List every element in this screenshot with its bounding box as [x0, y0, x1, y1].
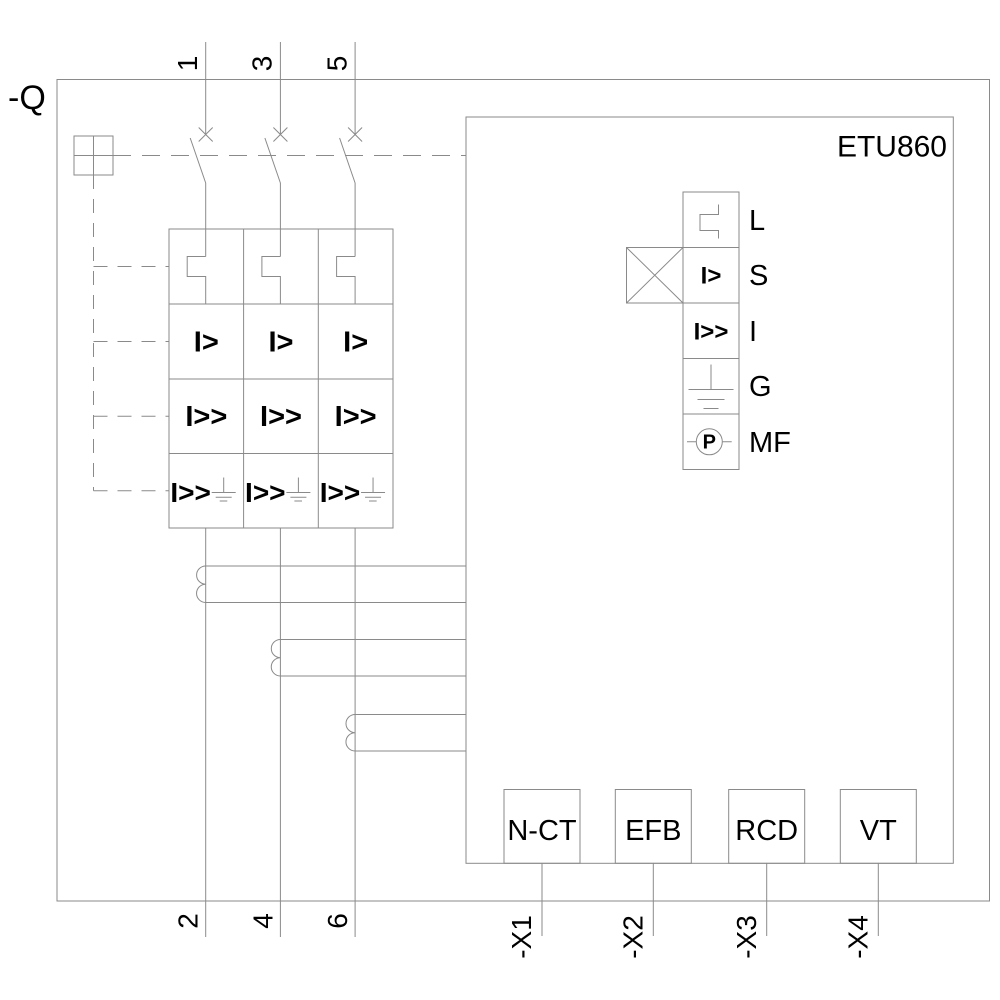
grid-cell-short-circuit: I>> [335, 401, 377, 433]
grid-cell-ground-fault: I>> [170, 477, 210, 508]
trip-function-legend: L I> S I>> I G P MF [627, 192, 791, 470]
trip-unit-box [466, 117, 953, 863]
grid-cell-ground-fault: I>> [245, 477, 285, 508]
legend-symbol-MF: P [703, 431, 716, 453]
module-terminal-label: -X2 [618, 915, 649, 959]
long-time-step-icon [337, 257, 356, 305]
module-efb: EFB -X2 [615, 790, 691, 959]
protection-grid: I> I> I> I>> I>> I>> I>> I>> I>> [169, 229, 393, 528]
grid-cell-short-circuit: I>> [260, 401, 302, 433]
x-box-icon [627, 248, 684, 304]
grid-cell-overload: I> [194, 327, 219, 359]
current-transformer-icon [197, 566, 466, 603]
mechanism-square-cross-icon [74, 136, 113, 175]
module-label: N-CT [507, 815, 577, 847]
mechanism-dashed-linkage [94, 156, 467, 491]
grid-cell-short-circuit: I>> [185, 401, 227, 433]
ground-icon [689, 365, 734, 409]
legend-label-I: I [749, 316, 757, 348]
legend-symbol-I: I>> [694, 318, 729, 345]
legend-label-L: L [749, 205, 765, 237]
module-label: EFB [625, 815, 681, 847]
terminal-label-bottom: 6 [322, 913, 353, 929]
long-time-step-icon [187, 257, 206, 305]
legend-label-S: S [749, 260, 768, 292]
module-label: VT [860, 815, 897, 847]
terminal-label-top: 1 [172, 56, 203, 72]
legend-label-MF: MF [749, 427, 791, 459]
breaker-contact-blade [340, 138, 356, 183]
module-label: RCD [735, 815, 798, 847]
mf-circle-p-icon: P [687, 429, 732, 455]
device-tag: -Q [8, 79, 46, 117]
module-n-ct: N-CT -X1 [504, 790, 580, 959]
trip-unit-label: ETU860 [837, 131, 947, 164]
current-transformer-icon [346, 715, 466, 752]
module-terminal-label: -X3 [731, 915, 762, 959]
long-time-step-icon [262, 257, 281, 305]
grid-cell-overload: I> [343, 327, 368, 359]
terminal-label-top: 3 [247, 56, 278, 72]
module-terminal-label: -X4 [843, 915, 874, 959]
terminal-label-bottom: 4 [247, 913, 278, 929]
current-transformer-icon [271, 640, 466, 677]
terminal-label-bottom: 2 [173, 913, 204, 929]
long-time-step-icon [700, 205, 719, 239]
legend-symbol-S: I> [701, 263, 722, 290]
grid-cell-overload: I> [269, 327, 294, 359]
grid-cell-ground-fault: I>> [320, 477, 360, 508]
ground-icon [361, 478, 385, 502]
ground-icon [212, 478, 236, 502]
terminal-label-top: 5 [321, 56, 352, 72]
ground-icon [286, 478, 310, 502]
module-terminal-label: -X1 [506, 915, 537, 959]
breaker-contact-blade [190, 138, 206, 183]
legend-label-G: G [749, 371, 772, 403]
breaker-schematic: -Q ETU860 1 2 3 [0, 0, 1000, 1000]
breaker-contact-blade [265, 138, 281, 183]
module-rcd: RCD -X3 [729, 790, 805, 959]
module-vt: VT -X4 [840, 790, 916, 959]
